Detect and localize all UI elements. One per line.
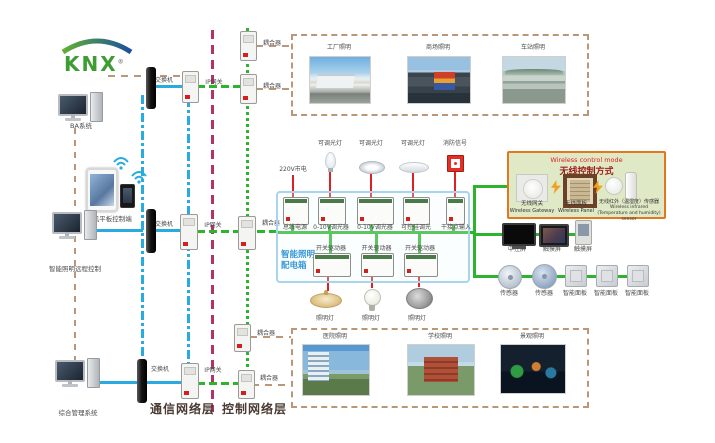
wireless-gateway-label-en: Wireless Gateway — [510, 208, 555, 214]
touchscreen-label-1: 触摸屏 — [537, 246, 567, 253]
wireless-gateway-icon — [516, 174, 548, 202]
smart-panel-icon-3 — [627, 265, 649, 287]
distribution-box-title-line1: 智能照明 — [281, 250, 315, 260]
lamp-label-3: 照明灯 — [403, 315, 431, 322]
monitor-base — [65, 118, 81, 121]
wireless-gateway-label-cn: 无线网关 — [509, 201, 555, 208]
photo-factory-lighting — [309, 56, 371, 104]
switch-actuator-3 — [404, 253, 438, 277]
dimmable-lamp-label-3: 可调光灯 — [398, 140, 428, 147]
switch-column-line — [141, 95, 144, 390]
ip-gateway-icon-3 — [181, 363, 199, 399]
wireless-sensor-bar-icon — [625, 172, 637, 200]
spot-lamp-icon — [406, 288, 433, 309]
switch-actuator-1 — [313, 253, 351, 277]
dimmer-label-2: 0-10V调光器 — [352, 224, 398, 231]
coupler-icon-4 — [234, 324, 251, 352]
central-screen-icon — [502, 223, 536, 246]
dimmer-device-1 — [318, 197, 346, 225]
computer-management-label: 综合管理系统 — [35, 410, 121, 418]
wireless-panel-label-en: Wireless Panel — [558, 208, 594, 214]
dimmable-lamp-label-1: 可调光灯 — [315, 140, 345, 147]
touchscreen-icon-2 — [575, 220, 592, 245]
wireless-gateway-label: 无线网关 Wireless Gateway — [509, 201, 555, 214]
actuator-label-3: 开关驱动器 — [402, 245, 438, 252]
sensor-label-2: 传感器 — [531, 290, 557, 297]
row3-blue-link-a — [96, 381, 138, 384]
photo-station-label: 车站照明 — [502, 44, 564, 51]
row3-blue-link-b — [146, 381, 181, 384]
smart-panel-label-2: 智能面板 — [592, 290, 620, 297]
wireless-control-box: Wireless control mode 无线控制方式 无线网关 Wirele… — [507, 151, 666, 219]
smart-panel-icon-1 — [565, 265, 587, 287]
sensor-icon-1 — [498, 265, 522, 289]
row1-blue-link — [155, 85, 183, 88]
coupler-icon-2 — [240, 74, 257, 104]
coupler-icon-3 — [238, 216, 256, 250]
panel-light-icon — [399, 162, 429, 173]
dry-contact-label: 干接点输入 — [441, 224, 469, 231]
wireless-sensor-dome-icon — [605, 177, 623, 195]
ip-gateway-icon-1 — [182, 71, 199, 103]
distribution-box-title: 智能照明 配电箱 — [281, 250, 315, 272]
wireless-link-icon — [551, 180, 561, 194]
wireless-title-en: Wireless control mode — [509, 156, 664, 164]
communication-layer-label: 通信网络层 — [150, 400, 215, 417]
fire-alarm-icon — [447, 155, 464, 172]
mobile-control-group — [86, 158, 148, 208]
ceiling-lamp-icon — [310, 293, 342, 308]
sensor-label-1: 传感器 — [496, 290, 522, 297]
candle-bulb-icon — [325, 152, 336, 169]
dimmer-device-2 — [357, 197, 394, 225]
fire-signal-label: 消防信号 — [440, 140, 470, 147]
wireless-sensor-label-en: Wireless infrared (Temperature and humid… — [597, 205, 660, 221]
photo-landscape-label: 景观照明 — [500, 333, 564, 340]
bulb-lamp-icon — [364, 289, 381, 306]
pc-tower-icon — [87, 358, 100, 388]
switch-label-2: 交换机 — [150, 221, 178, 228]
pc-tower-icon — [84, 210, 97, 240]
switch-actuator-2 — [361, 253, 394, 277]
photo-school-lighting — [407, 344, 475, 396]
photo-school-label: 学校照明 — [407, 333, 473, 340]
diagram-canvas: KNX® BA系统 手机平板控制端 智能照明远程控制 — [0, 0, 715, 443]
coupler-label-2: 耦合器 — [257, 83, 287, 90]
photo-landscape-lighting — [500, 344, 566, 394]
coupler-label-4: 耦合器 — [251, 330, 281, 337]
wireless-sensor-label: 无线红外（温湿度）传感器 Wireless infrared (Temperat… — [597, 199, 661, 222]
photo-station-lighting — [502, 56, 566, 104]
computer-remote-control — [52, 210, 98, 244]
wireless-panel-label-cn: 无线面板 — [555, 201, 597, 208]
actuator-label-1: 开关驱动器 — [313, 245, 349, 252]
distribution-box-title-line2: 配电箱 — [281, 261, 307, 271]
monitor-icon — [58, 94, 88, 116]
management-bus-line — [74, 128, 76, 368]
computer-management — [55, 358, 101, 392]
coupler-icon-1 — [240, 31, 257, 61]
touchscreen-label-2: 触摸屏 — [568, 246, 598, 253]
monitor-base — [62, 384, 78, 387]
registered-mark-icon: ® — [118, 58, 126, 65]
central-screen-label: 中控屏 — [500, 246, 534, 253]
bus-power-label: 总线电源 — [276, 224, 314, 231]
gateway-label-1: IP网关 — [199, 79, 229, 86]
computer-ba-system — [58, 92, 104, 126]
switch-label-1: 交换机 — [150, 77, 178, 84]
knx-logo-text: KNX® — [64, 52, 126, 76]
network-switch-icon-1 — [146, 67, 156, 109]
network-switch-icon-2 — [146, 209, 156, 253]
coupler-label-5: 耦合器 — [254, 375, 284, 382]
sensor-icon-2 — [532, 264, 557, 289]
switch-label-3: 交换机 — [146, 366, 174, 373]
row2-blue-link-b — [155, 229, 181, 232]
control-layer-label: 控制网络层 — [222, 400, 287, 417]
monitor-icon — [52, 212, 82, 234]
coupler5-photo-link — [252, 384, 291, 386]
computer-ba-label: BA系统 — [58, 123, 104, 131]
coupler-label-1: 耦合器 — [257, 40, 287, 47]
pc-tower-icon — [90, 92, 103, 122]
photo-factory-label: 工厂照明 — [309, 44, 369, 51]
smart-panel-label-1: 智能面板 — [561, 290, 589, 297]
actuator-label-2: 开关驱动器 — [359, 245, 394, 252]
scr-dimmer-device — [403, 197, 430, 225]
smart-panel-label-3: 智能面板 — [623, 290, 651, 297]
smart-panel-icon-2 — [596, 265, 618, 287]
mains-power-label: 220V市电 — [277, 166, 309, 173]
photo-mall-lighting — [407, 56, 471, 104]
coupler-icon-5 — [238, 370, 255, 399]
wifi-icon — [130, 170, 148, 184]
wireless-panel-label: 无线面板 Wireless Panel — [555, 201, 597, 214]
bus-power-device — [283, 197, 309, 225]
downlight-icon — [359, 161, 385, 174]
photo-mall-label: 商场照明 — [407, 44, 469, 51]
monitor-base — [59, 236, 75, 239]
lamp-label-2: 照明灯 — [357, 315, 385, 322]
row2-blue-link-a — [95, 229, 143, 232]
computer-remote-label: 智能照明远程控制 — [30, 266, 120, 274]
dry-contact-device — [446, 197, 465, 225]
dimmable-lamp-label-2: 可调光灯 — [356, 140, 386, 147]
touchscreen-icon-1 — [539, 224, 569, 247]
monitor-icon — [55, 360, 85, 382]
gateway-label-2: IP网关 — [198, 222, 228, 229]
gateway-label-3: IP网关 — [198, 367, 228, 374]
knx-logo: KNX® — [58, 38, 144, 82]
scr-dimmer-label: 可控硅调光 — [396, 224, 436, 231]
tablet-icon — [86, 168, 118, 212]
photo-hospital-label: 医院照明 — [302, 333, 368, 340]
ip-gateway-icon-2 — [180, 214, 198, 250]
photo-hospital-lighting — [302, 344, 370, 396]
wireless-branch-line — [474, 185, 508, 188]
phone-icon — [120, 184, 135, 208]
dimmer-label-1: 0-10V调光器 — [310, 224, 352, 231]
lamp-label-1: 照明灯 — [311, 315, 339, 322]
